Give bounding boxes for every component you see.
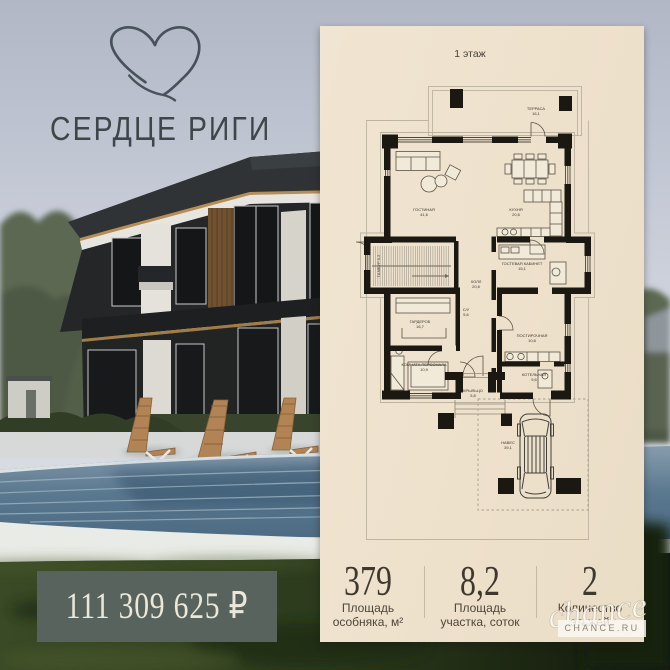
- svg-text:ТАМБУР 5,2: ТАМБУР 5,2: [376, 254, 381, 278]
- svg-text:39,1: 39,1: [504, 445, 513, 450]
- svg-text:5,6: 5,6: [463, 312, 469, 317]
- svg-text:16,7: 16,7: [416, 324, 425, 329]
- svg-text:20,6: 20,6: [472, 284, 481, 289]
- svg-text:5,8: 5,8: [470, 393, 476, 398]
- svg-text:10,9: 10,9: [420, 367, 429, 372]
- svg-text:41,6: 41,6: [420, 212, 429, 217]
- svg-text:16,1: 16,1: [532, 111, 541, 116]
- svg-text:10,6: 10,6: [528, 338, 537, 343]
- svg-text:1 этаж: 1 этаж: [454, 48, 485, 60]
- svg-text:20,6: 20,6: [512, 212, 521, 217]
- svg-text:9,6: 9,6: [531, 377, 537, 382]
- svg-text:15,1: 15,1: [518, 266, 527, 271]
